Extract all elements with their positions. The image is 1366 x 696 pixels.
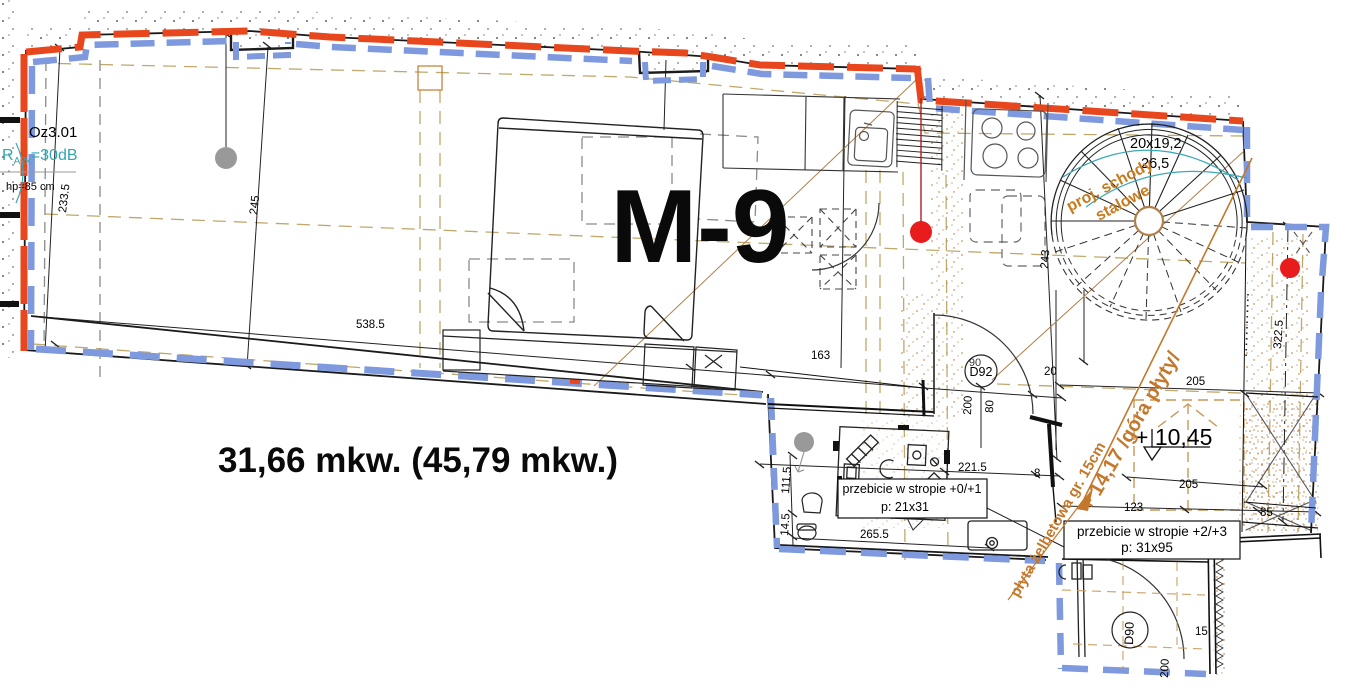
svg-text:80: 80 xyxy=(984,400,996,413)
svg-text:8: 8 xyxy=(1034,468,1040,480)
svg-text:243: 243 xyxy=(1039,249,1052,269)
svg-text:205: 205 xyxy=(1179,479,1198,491)
svg-text:31,66 mkw. (45,79 mkw.): 31,66 mkw. (45,79 mkw.) xyxy=(218,441,618,480)
svg-text:205: 205 xyxy=(1186,376,1205,388)
svg-text:85: 85 xyxy=(1260,507,1273,519)
svg-text:200: 200 xyxy=(1159,659,1172,679)
svg-text:20x19,2: 20x19,2 xyxy=(1130,136,1182,152)
svg-text:p: 21x31: p: 21x31 xyxy=(881,500,929,514)
svg-text:14.5: 14.5 xyxy=(779,513,793,536)
svg-text:przebicie w stropie +0/+1: przebicie w stropie +0/+1 xyxy=(843,482,982,496)
svg-text:200: 200 xyxy=(962,396,975,416)
svg-text:90: 90 xyxy=(969,357,981,369)
svg-text:163: 163 xyxy=(811,350,830,362)
svg-text:245: 245 xyxy=(248,195,262,216)
svg-text:15: 15 xyxy=(1195,626,1208,638)
svg-text:538.5: 538.5 xyxy=(356,319,385,331)
svg-text:p: 31x95: p: 31x95 xyxy=(1121,540,1173,555)
svg-text:Oz3.01: Oz3.01 xyxy=(29,124,77,141)
svg-text:D90: D90 xyxy=(1122,622,1137,645)
svg-text:M-9: M-9 xyxy=(610,169,789,285)
svg-text:20: 20 xyxy=(1044,366,1057,378)
svg-text:322.5: 322.5 xyxy=(1272,320,1286,350)
svg-text:+ 10,45: + 10,45 xyxy=(1135,424,1212,450)
svg-text:hp=85 cm: hp=85 cm xyxy=(6,181,55,193)
svg-text:265.5: 265.5 xyxy=(860,529,889,541)
svg-text:przebicie w stropie +2/+3: przebicie w stropie +2/+3 xyxy=(1077,524,1227,539)
svg-text:221.5: 221.5 xyxy=(958,462,987,474)
svg-text:123: 123 xyxy=(1124,502,1143,514)
svg-text:111.5: 111.5 xyxy=(780,466,794,494)
